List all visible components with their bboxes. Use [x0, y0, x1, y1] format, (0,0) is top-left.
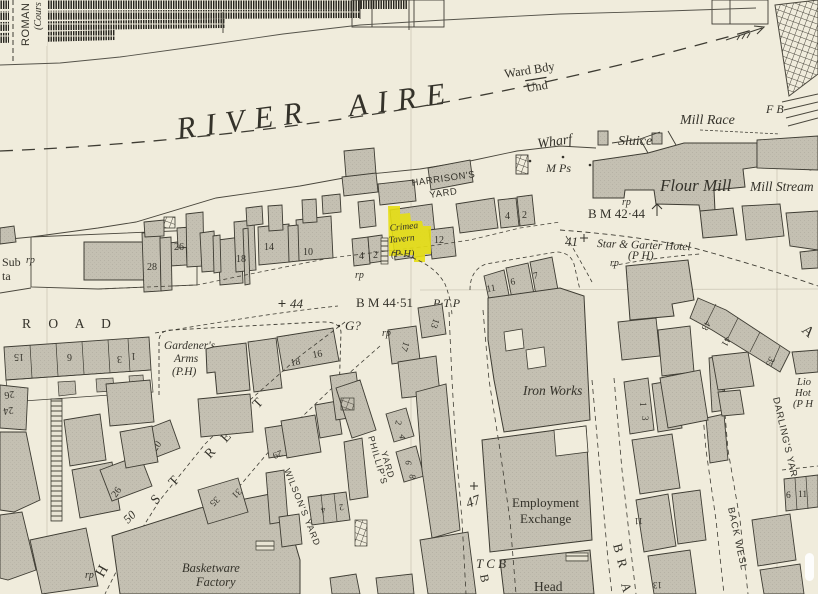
svg-text:ROMAN: ROMAN — [20, 3, 32, 46]
svg-text:Factory: Factory — [195, 575, 236, 589]
svg-text:M Ps: M Ps — [545, 161, 571, 175]
svg-text:10: 10 — [303, 247, 313, 258]
svg-text:4: 4 — [359, 251, 364, 262]
svg-text:G?: G? — [345, 318, 361, 333]
svg-text:24: 24 — [3, 404, 14, 416]
svg-text:(P H): (P H) — [628, 250, 654, 262]
svg-text:rp: rp — [26, 255, 35, 266]
svg-text:B M 42·44: B M 42·44 — [588, 206, 646, 221]
svg-text:11: 11 — [634, 516, 643, 526]
svg-text:Sub: Sub — [2, 255, 21, 269]
svg-text:rp: rp — [355, 270, 364, 281]
svg-text:41: 41 — [565, 234, 578, 249]
svg-text:Mill Stream: Mill Stream — [749, 179, 814, 194]
svg-text:2: 2 — [373, 250, 378, 261]
svg-text:12: 12 — [434, 235, 444, 246]
svg-text:Hot: Hot — [794, 388, 812, 399]
svg-text:Exchange: Exchange — [520, 511, 571, 526]
svg-text:Arms: Arms — [173, 353, 199, 365]
svg-text:6: 6 — [786, 491, 791, 501]
svg-text:3: 3 — [640, 416, 650, 421]
svg-text:Head: Head — [534, 579, 563, 594]
svg-text:1: 1 — [638, 402, 648, 407]
svg-text:18: 18 — [290, 356, 302, 369]
svg-text:ta: ta — [2, 269, 11, 283]
svg-text:44: 44 — [290, 296, 304, 311]
svg-text:B M 44·51: B M 44·51 — [356, 295, 413, 310]
svg-text:3: 3 — [117, 353, 122, 364]
svg-text:Iron Works: Iron Works — [522, 383, 582, 398]
svg-text:18: 18 — [236, 254, 246, 265]
svg-text:Mill Race: Mill Race — [679, 113, 735, 128]
svg-text:rp: rp — [382, 328, 391, 339]
svg-text:T C B: T C B — [476, 556, 506, 571]
svg-text:rp: rp — [85, 570, 94, 581]
svg-text:11: 11 — [798, 490, 807, 500]
svg-text:1: 1 — [131, 350, 136, 361]
svg-text:2: 2 — [522, 210, 527, 221]
svg-text:26: 26 — [174, 242, 184, 253]
svg-text:(Cours: (Cours — [33, 2, 44, 30]
svg-text:F B: F B — [765, 102, 784, 116]
svg-text:13: 13 — [653, 580, 663, 590]
svg-text:26: 26 — [4, 388, 15, 400]
svg-text:Flour Mill: Flour Mill — [659, 176, 732, 195]
svg-text:Employment: Employment — [512, 495, 580, 510]
svg-text:R O A D: R O A D — [22, 316, 118, 331]
svg-text:Basketware: Basketware — [182, 561, 240, 575]
svg-text:4: 4 — [505, 211, 510, 222]
svg-text:(P.H): (P.H) — [172, 366, 197, 378]
svg-text:rp: rp — [610, 258, 619, 269]
svg-text:16: 16 — [312, 348, 324, 361]
svg-text:Lio: Lio — [796, 377, 811, 388]
svg-text:14: 14 — [264, 242, 274, 253]
svg-text:(P H: (P H — [793, 399, 814, 410]
svg-text:6: 6 — [67, 351, 72, 362]
svg-text:28: 28 — [147, 262, 157, 273]
svg-text:15: 15 — [14, 351, 24, 362]
